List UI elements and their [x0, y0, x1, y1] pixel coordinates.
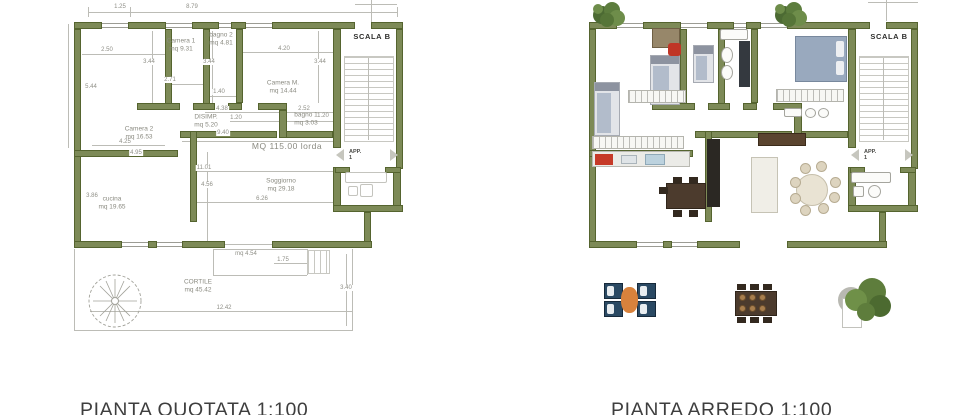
chair	[790, 193, 801, 204]
pianta-arredo-plan: SCALA BAPP.1	[0, 0, 960, 415]
door-arrow-icon	[851, 149, 859, 161]
chair	[659, 187, 668, 194]
chair	[750, 317, 759, 323]
dimension-line	[886, 0, 887, 21]
chair	[689, 210, 698, 217]
chair	[763, 317, 772, 323]
wall-segment	[848, 205, 918, 212]
desk-chair	[668, 43, 681, 56]
single-bed	[594, 82, 620, 136]
window	[681, 23, 707, 28]
chair	[763, 284, 772, 290]
floorplan-sheet: 1.258.792.503.443.443.444.205.442.711.40…	[0, 0, 960, 415]
wall-segment	[751, 29, 758, 103]
wall-segment	[589, 241, 637, 248]
wall-segment	[663, 241, 672, 248]
chair	[689, 177, 698, 184]
bidet-icon	[721, 65, 733, 80]
wall-segment	[848, 29, 856, 148]
chair	[800, 205, 811, 216]
shower	[739, 41, 750, 87]
wardrobe	[592, 136, 684, 149]
chair	[818, 203, 829, 214]
bidet-icon	[818, 108, 829, 118]
chair	[816, 161, 827, 172]
garden-side-table	[621, 287, 638, 313]
stair-rail	[883, 58, 884, 140]
sofa	[751, 157, 778, 213]
wall-segment	[886, 22, 918, 29]
chair	[673, 210, 682, 217]
chair	[790, 177, 801, 188]
dimension-line	[868, 2, 918, 3]
chair	[737, 284, 746, 290]
plate	[759, 294, 766, 301]
kitchen-counter	[592, 151, 690, 167]
toilet-icon	[721, 47, 733, 63]
staircase	[859, 56, 909, 142]
external-steps	[820, 250, 845, 272]
washbasin	[784, 108, 802, 117]
window	[734, 23, 746, 28]
plate	[759, 305, 766, 312]
wall-segment	[900, 167, 916, 173]
toilet-icon	[868, 185, 881, 198]
lounge-chair	[637, 301, 656, 317]
double-bed	[795, 36, 847, 82]
wall-segment	[879, 212, 886, 242]
tv-cabinet	[707, 139, 720, 207]
round-table	[796, 174, 828, 206]
wall-segment	[743, 103, 757, 110]
caption-pianta-arredo: PIANTA ARREDO 1:100	[611, 399, 832, 415]
wall-segment	[697, 241, 740, 248]
chair	[737, 317, 746, 323]
plate	[749, 305, 756, 312]
plate	[739, 305, 746, 312]
bidet-icon	[853, 186, 864, 197]
window	[672, 242, 697, 247]
plate	[739, 294, 746, 301]
wall-segment	[911, 29, 918, 169]
single-bed	[693, 45, 714, 83]
toilet-icon	[805, 108, 816, 118]
scala-label: SCALA B	[859, 32, 919, 41]
plant-icon	[590, 0, 628, 30]
chair	[800, 163, 811, 174]
wall-segment	[746, 22, 761, 29]
lounge-chair	[637, 283, 656, 299]
wood-deck	[733, 248, 845, 274]
wall-segment	[787, 241, 887, 248]
window	[637, 242, 663, 247]
wall-segment	[708, 103, 730, 110]
plant-icon	[772, 0, 810, 30]
plate	[749, 294, 756, 301]
chair	[750, 284, 759, 290]
sideboard	[758, 133, 806, 146]
bathtub-icon	[851, 172, 891, 183]
wardrobe	[776, 89, 844, 102]
wall-segment	[707, 22, 734, 29]
washbasin-cabinet	[720, 29, 748, 40]
wardrobe	[628, 90, 686, 103]
apartment-label: APP.1	[864, 149, 886, 163]
chair	[673, 177, 682, 184]
app-number: 1	[864, 155, 886, 161]
tree-icon	[834, 274, 894, 326]
chair	[830, 177, 841, 188]
caption-pianta-quotata: PIANTA QUOTATA 1:100	[80, 399, 308, 415]
chair	[829, 192, 840, 203]
door-arrow-icon	[905, 149, 913, 161]
dining-table	[666, 183, 706, 209]
